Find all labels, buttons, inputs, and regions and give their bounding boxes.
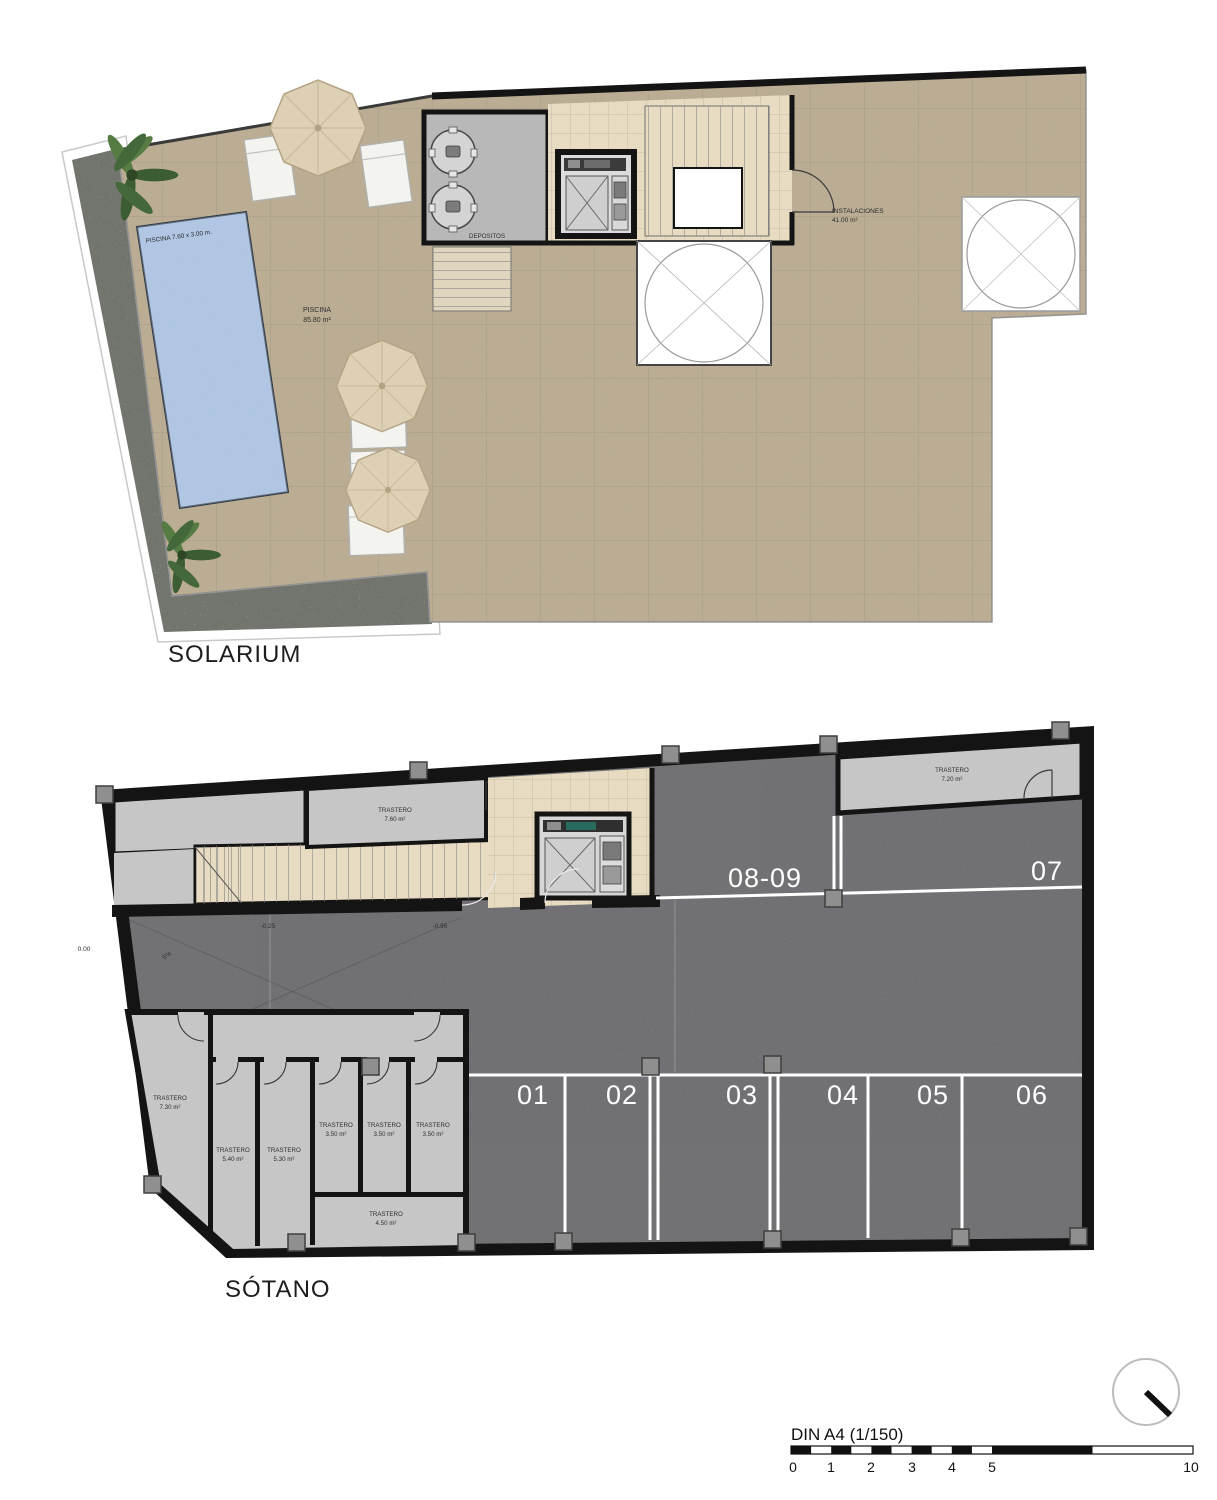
- depositos-room: DEPOSITOS: [424, 112, 548, 243]
- elevator-icon: [537, 814, 629, 898]
- pool-area-name: PISCINA: [303, 307, 331, 314]
- sotano-title: SÓTANO: [225, 1276, 331, 1303]
- trastero-label: TRASTERO: [378, 807, 412, 814]
- parking-space-03: 03: [726, 1080, 758, 1110]
- north-indicator-icon: [1113, 1359, 1179, 1425]
- trastero-label: TRASTERO: [367, 1122, 401, 1129]
- trastero-label: TRASTERO: [369, 1211, 403, 1218]
- scale-tick-5: 5: [988, 1459, 996, 1475]
- pool-area-value: 85.80 m²: [303, 317, 331, 324]
- trastero-area: 7.60 m²: [385, 816, 406, 823]
- level-lobby: -0.95: [433, 923, 448, 930]
- trastero-label: TRASTERO: [416, 1122, 450, 1129]
- trastero-area: 7.30 m²: [160, 1104, 181, 1111]
- solarium-title: SOLARIUM: [168, 641, 301, 668]
- trastero-area: 3.50 m²: [423, 1131, 444, 1138]
- floor-plan-sheet: PISCINA 7.60 x 3.00 m. PISCINA 85.80 m²: [0, 0, 1217, 1500]
- trastero-label: TRASTERO: [267, 1147, 301, 1154]
- parking-space-01: 01: [517, 1080, 549, 1110]
- instalaciones-area: 41.00 m²: [832, 217, 858, 224]
- trastero-area: 3.50 m²: [326, 1131, 347, 1138]
- scale-tick-0: 0: [789, 1459, 797, 1475]
- trastero-area: 7.20 m²: [942, 776, 963, 783]
- courtyard-lightwell: [637, 241, 771, 365]
- trastero-label: TRASTERO: [319, 1122, 353, 1129]
- solarium-plan: PISCINA 7.60 x 3.00 m. PISCINA 85.80 m²: [60, 60, 1100, 668]
- parking-space-02: 02: [606, 1080, 638, 1110]
- depositos-label: DEPOSITOS: [469, 233, 505, 240]
- trastero-area: 5.30 m²: [274, 1156, 295, 1163]
- level-mid: -0.25: [261, 923, 276, 930]
- stairs-icon: [433, 247, 511, 311]
- sotano-plan: TRASTERO 7.60 m²: [78, 720, 1100, 1303]
- trastero-label: TRASTERO: [153, 1095, 187, 1102]
- trastero-label: TRASTERO: [935, 767, 969, 774]
- scale-tick-3: 3: [908, 1459, 916, 1475]
- level-street: 0.00: [78, 946, 91, 953]
- courtyard-lightwell: [962, 197, 1080, 311]
- plan-canvas: PISCINA 7.60 x 3.00 m. PISCINA 85.80 m²: [0, 0, 1217, 1500]
- scale-bar-label: DIN A4 (1/150): [791, 1425, 903, 1444]
- trastero-area: 5.40 m²: [223, 1156, 244, 1163]
- trastero-area: 4.50 m²: [376, 1220, 397, 1227]
- scale-tick-10: 10: [1183, 1459, 1199, 1475]
- storage-cluster: TRASTERO 7.30 m² TRASTERO 5.40 m² TRASTE…: [128, 1012, 466, 1252]
- parking-space-05: 05: [917, 1080, 949, 1110]
- scale-tick-4: 4: [948, 1459, 956, 1475]
- trastero-area: 3.50 m²: [374, 1131, 395, 1138]
- parking-space-08-09: 08-09: [728, 863, 802, 893]
- scale-bar: DIN A4 (1/150) 0 1 2 3 4 5 10: [789, 1425, 1199, 1475]
- instalaciones-label: INSTALACIONES: [832, 208, 884, 215]
- parking-space-07: 07: [1031, 856, 1063, 886]
- elevator-icon: [558, 152, 634, 236]
- trastero-label: TRASTERO: [216, 1147, 250, 1154]
- stairs-icon: [195, 840, 520, 905]
- stairs-icon: [645, 106, 769, 236]
- parking-space-06: 06: [1016, 1080, 1048, 1110]
- scale-tick-2: 2: [867, 1459, 875, 1475]
- parking-space-04: 04: [827, 1080, 859, 1110]
- trastero-760-room: TRASTERO 7.60 m²: [307, 778, 514, 847]
- scale-tick-1: 1: [827, 1459, 835, 1475]
